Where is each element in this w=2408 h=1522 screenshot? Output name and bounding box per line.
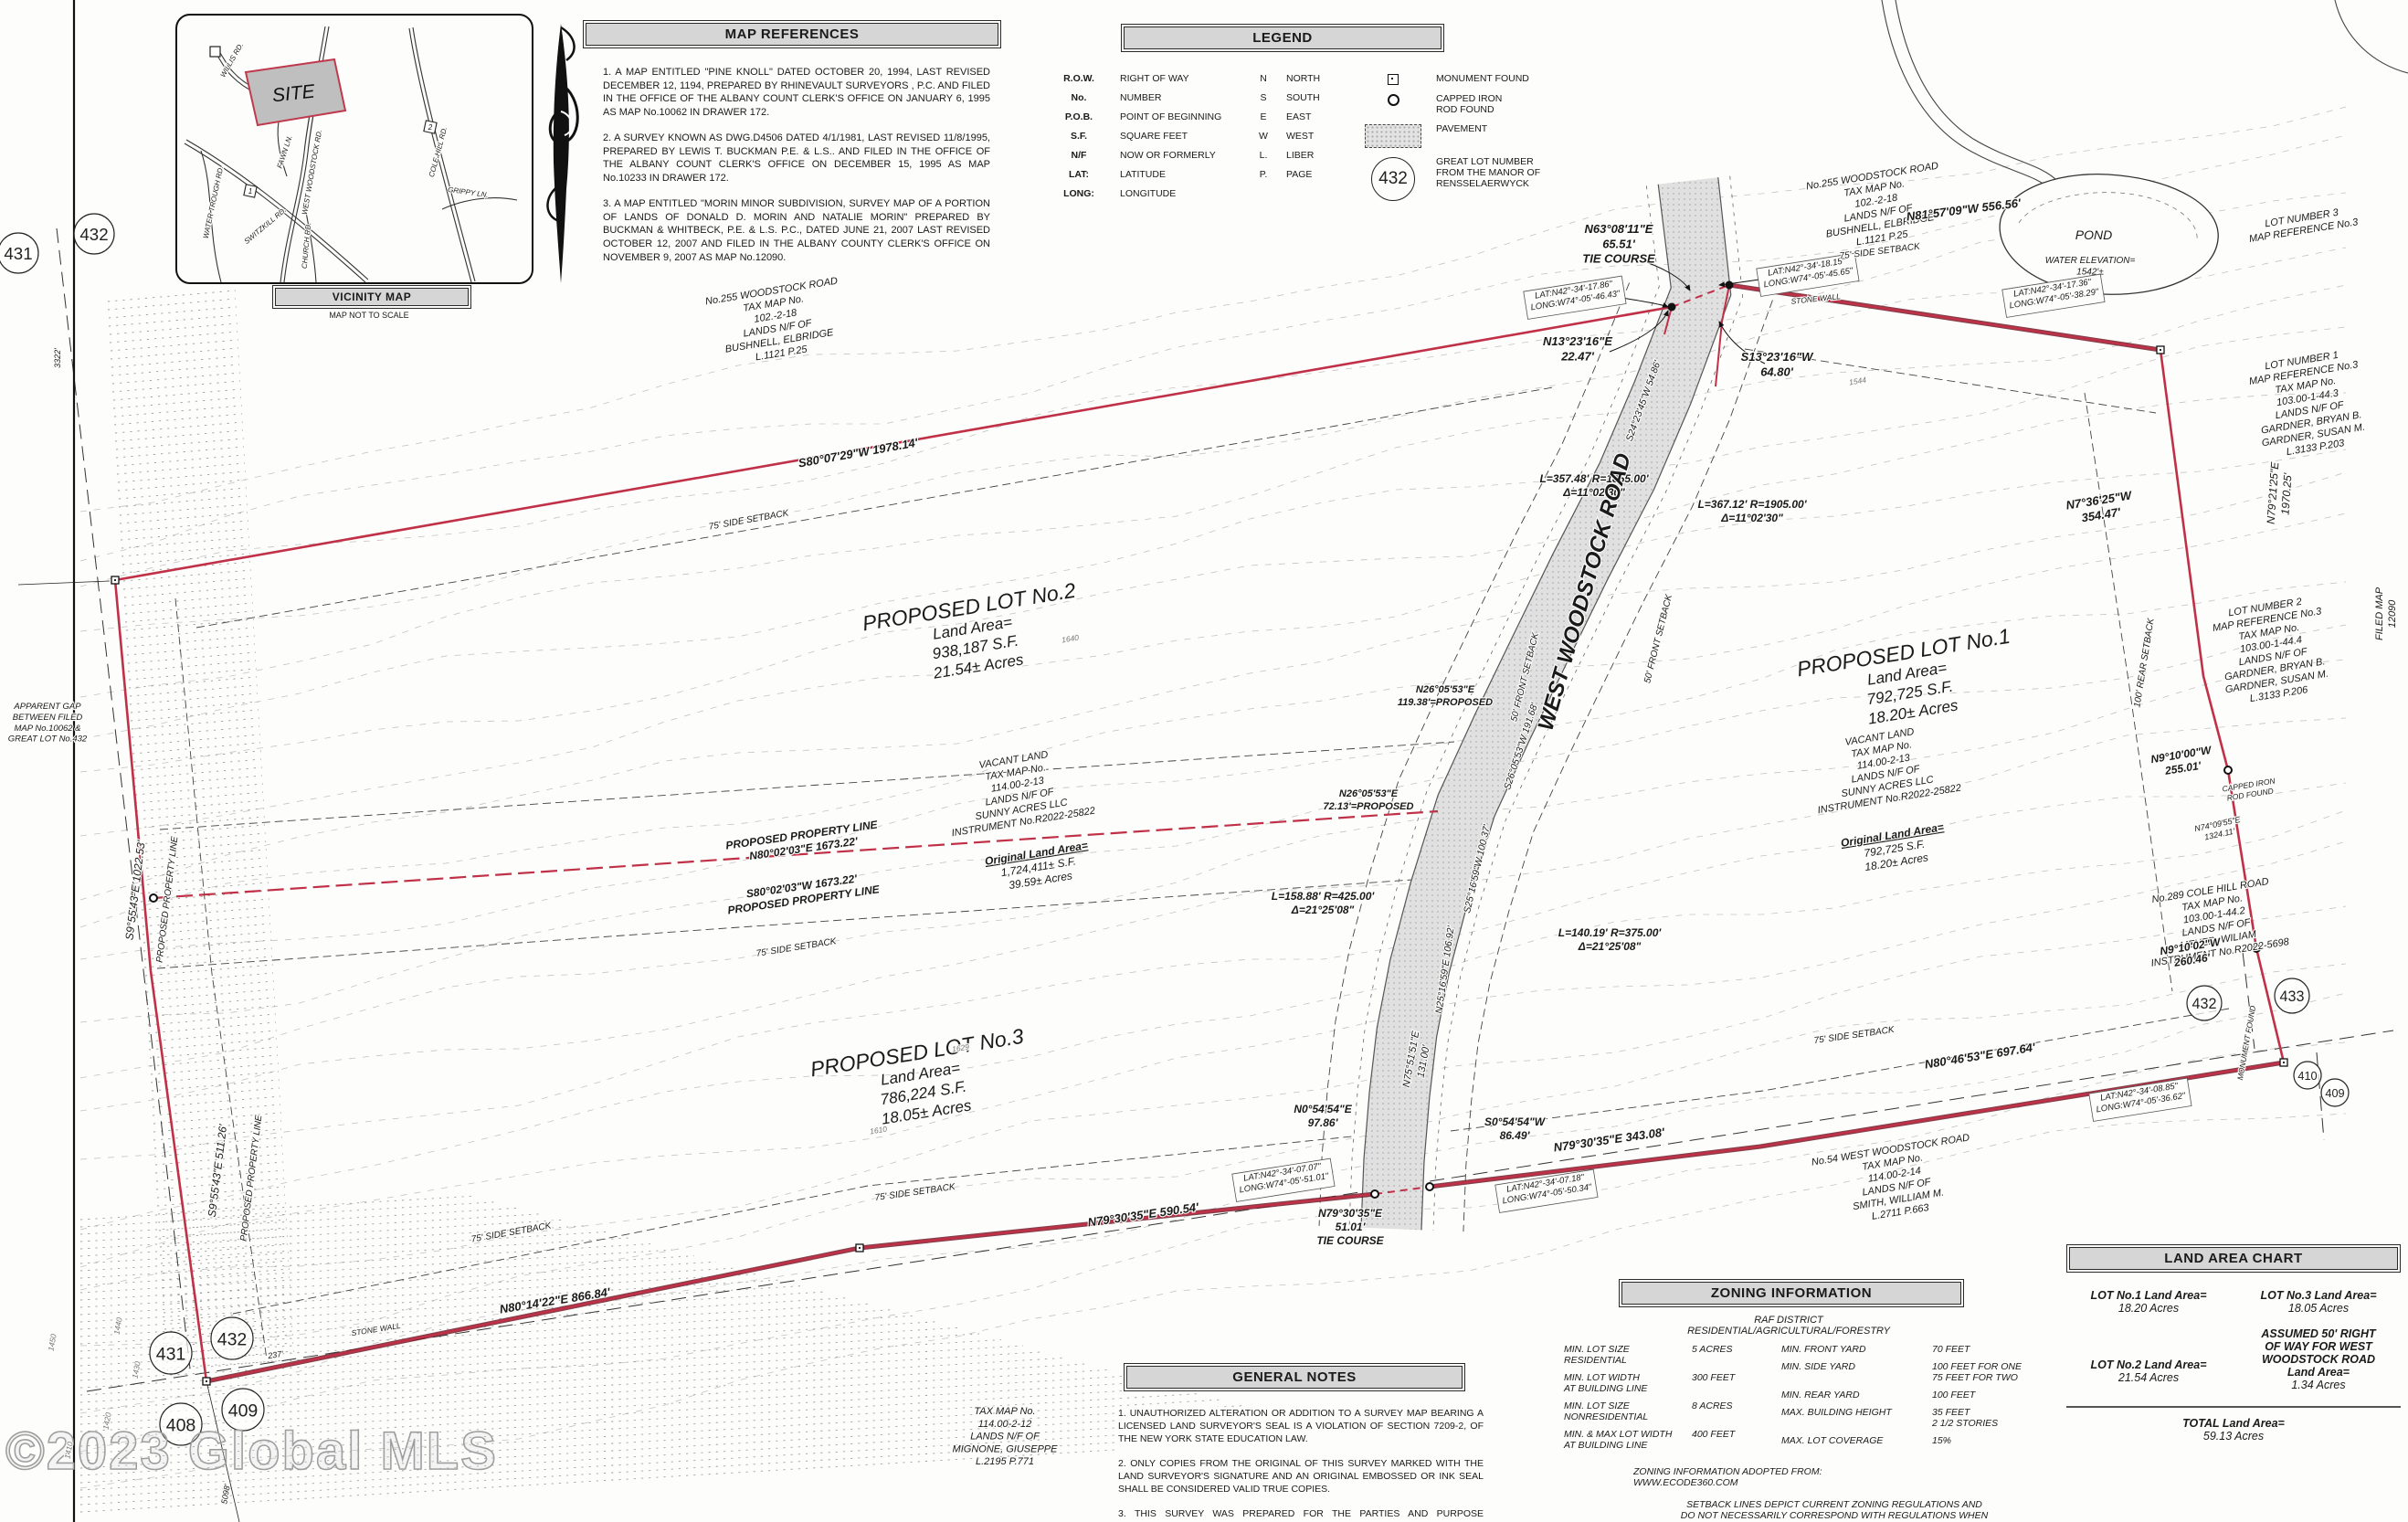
zoning-title-bar: ZONING INFORMATION: [1619, 1279, 1964, 1307]
legend-row: E EAST: [1253, 111, 1363, 122]
map-label-group: LOT NUMBER 1MAP REFERENCE No.3TAX MAP No…: [2246, 347, 2371, 462]
north-arrow-ornament-icon: [530, 20, 594, 285]
map-label-group: N9°10'00"W255.01': [2149, 744, 2215, 779]
legend-meaning: NORTH: [1273, 73, 1320, 84]
zoning-requirement: MIN. LOT WIDTH AT BUILDING LINE 300 FEET: [1564, 1372, 1781, 1394]
contour-line: [80, 513, 2346, 927]
map-label-group: 1430: [130, 1360, 142, 1379]
general-notes-title-bar: GENERAL NOTES: [1124, 1363, 1465, 1391]
map-label-group: 75' SIDE SETBACK: [874, 1182, 957, 1203]
map-label: Original Land Area=1,724,411± S.F.39.59±…: [984, 839, 1093, 894]
map-label-group: L=140.19' R=375.00'Δ=21°25'08": [1558, 926, 1663, 953]
monument-found-icon: [1363, 73, 1423, 85]
zoning-district: RAF DISTRICT RESIDENTIAL/AGRICULTURAL/FO…: [1551, 1315, 2026, 1337]
zoning-requirement-value: 300 FEET: [1692, 1372, 1774, 1394]
monument-found-icon: [206, 1380, 207, 1382]
vicinity-road-end-box: [210, 47, 220, 57]
legend-row: L. LIBER: [1253, 150, 1363, 161]
map-label-group: 75' SIDE SETBACK: [1813, 1025, 1896, 1046]
map-label: 1640: [1061, 633, 1080, 645]
map-label-group: S80°02'03"W 1673.22'PROPOSED PROPERTY LI…: [724, 869, 881, 916]
general-notes-title: GENERAL NOTES: [1126, 1366, 1463, 1389]
legend-meaning: CAPPED IRON ROD FOUND: [1423, 93, 1502, 115]
route-marker-number: 1: [248, 187, 252, 196]
contour-line: [80, 393, 2346, 772]
legend-abbr: LAT:: [1051, 169, 1107, 180]
map-label-group: FILED MAP12090: [2374, 587, 2398, 640]
map-label: N79°21'25"E1970.25': [2265, 460, 2296, 525]
zoning-requirement: MIN. SIDE YARD 100 FEET FOR ONE 75 FEET …: [1781, 1361, 2065, 1383]
map-label: N79°30'35"E 343.08': [1553, 1125, 1666, 1154]
slope-hatch: [108, 291, 294, 1370]
legend-abbr: S.F.: [1051, 131, 1107, 142]
capped-iron-rod-icon: [150, 894, 157, 902]
map-reference-note: 2. A SURVEY KNOWN AS DWG.D4506 DATED 4/1…: [603, 132, 990, 185]
great-lot-circles: 431432432433410409431432408409: [0, 214, 2349, 1445]
map-label: L=140.19' R=375.00'Δ=21°25'08": [1558, 926, 1663, 953]
general-note: 3. THIS SURVEY WAS PREPARED FOR THE PART…: [1118, 1507, 1484, 1522]
map-label: 75' SIDE SETBACK: [874, 1182, 957, 1203]
zoning-requirement-label: MIN. REAR YARD: [1781, 1390, 1932, 1400]
great-lot-number: 432: [2192, 996, 2217, 1012]
map-label-group: N0°54'54"E97.86': [1294, 1103, 1352, 1129]
map-label: FILED MAP12090: [2374, 587, 2398, 640]
land-area-chart-title-bar: LAND AREA CHART: [2066, 1244, 2401, 1273]
route-marker-number: 2: [428, 123, 433, 132]
map-label-group: S13°23'16"W64.80': [1741, 350, 1815, 378]
legend-meaning: LONGITUDE: [1107, 188, 1176, 199]
survey-sheet: 431432432433410409431432408409 ©2023 Glo…: [0, 0, 2408, 1522]
great-lot-line: [57, 228, 190, 1369]
map-label-group: PROPOSED LOT No.1Land Area=792,725 S.F.1…: [1795, 624, 2021, 738]
zoning-requirement-value: 5 ACRES: [1692, 1344, 1774, 1366]
map-label-group: N26°05'53"E119.38'=PROPOSED: [1398, 684, 1493, 708]
stream-line: [1882, 0, 2049, 188]
legend-row: W WEST: [1253, 131, 1363, 142]
legend-abbr: W: [1253, 131, 1273, 142]
zoning-requirement-value: 70 FEET: [1932, 1344, 2060, 1355]
legend-symbol-row: PAVEMENT: [1363, 123, 1582, 148]
legend-meaning: GREAT LOT NUMBER FROM THE MANOR OF RENSS…: [1423, 156, 1540, 189]
map-label-group: S0°54'54"W86.49': [1484, 1115, 1547, 1142]
map-label: 75' SIDE SETBACK: [1839, 241, 1922, 261]
vicinity-map-title-bar: VICINITY MAP: [272, 285, 471, 309]
pavement-icon: [1363, 123, 1423, 148]
great-lot-number: 432: [79, 225, 108, 244]
map-label-group: LAT:N42°-34'-17.86"LONG:W74°-05'-46.43": [1524, 276, 1626, 319]
map-label: POND: [2075, 227, 2112, 242]
map-label-group: VACANT LANDTAX MAP No.114.00-2-13LANDS N…: [941, 744, 1096, 840]
monument-found-icon: [859, 1247, 861, 1249]
map-label-group: LOT NUMBER 2MAP REFERENCE No.3TAX MAP No…: [2210, 594, 2335, 709]
legend-row: R.O.W. RIGHT OF WAY: [1051, 73, 1252, 84]
vicinity-road-label: WATER TROUGH RD.: [202, 165, 226, 239]
map-label: N13°23'16"E22.47': [1543, 334, 1612, 363]
contour-line: [80, 810, 2346, 1230]
map-label: VACANT LANDTAX MAP No.114.00-2-13LANDS N…: [941, 744, 1096, 840]
legend-row: LONG: LONGITUDE: [1051, 188, 1252, 199]
legend-abbr: P.: [1253, 169, 1273, 180]
legend-abbr: R.O.W.: [1051, 73, 1107, 84]
stone-wall: [1430, 1062, 2284, 1187]
legend-meaning: SQUARE FEET: [1107, 131, 1188, 142]
legend-abbr: N/F: [1051, 150, 1107, 161]
zoning-requirement: MIN. LOT SIZE RESIDENTIAL 5 ACRES: [1564, 1344, 1781, 1366]
vicinity-map-drawing: WILLIS RD.WEST WOODSTOCK RD.SWITZKILL RD…: [177, 16, 532, 282]
legend-meaning: NOW OR FORMERLY: [1107, 150, 1216, 161]
map-label-group: PROPOSED PROPERTY LINE: [155, 836, 181, 964]
general-note: 1. UNAUTHORIZED ALTERATION OR ADDITION T…: [1118, 1407, 1484, 1445]
legend-symbol-row: MONUMENT FOUND: [1363, 73, 1582, 85]
map-references-title: MAP REFERENCES: [586, 23, 998, 46]
monument-found-icon: [114, 579, 116, 581]
legend-abbr: E: [1253, 111, 1273, 122]
map-label-group: N63°08'11"E65.51'TIE COURSE: [1582, 222, 1655, 266]
map-label-group: PROPOSED LOT No.2Land Area=938,187 S.F.2…: [861, 578, 1086, 692]
map-label-group: S80°07'29"W 1978.14': [797, 436, 920, 470]
map-label-group: 5098': [219, 1484, 232, 1505]
zoning-requirements-left: MIN. LOT SIZE RESIDENTIAL 5 ACRES MIN. L…: [1564, 1344, 1781, 1457]
map-label: N80°46'53"E 697.64': [1924, 1040, 2037, 1071]
land-area-entry: LOT No.2 Land Area= 21.54 Acres: [2066, 1358, 2231, 1391]
map-label-group: 3322': [53, 348, 62, 368]
map-label: S80°07'29"W 1978.14': [797, 436, 920, 470]
map-label: PROPOSED LOT No.3Land Area=786,224 S.F.1…: [808, 1024, 1034, 1138]
watermark: ©2023 Global MLS: [5, 1422, 498, 1481]
vicinity-map-title: VICINITY MAP: [275, 288, 469, 306]
map-label: 1544: [1848, 375, 1867, 387]
zoning-requirement-value: 8 ACRES: [1692, 1400, 1774, 1422]
map-label-group: 1610: [869, 1125, 888, 1136]
land-area-chart-title: LAND AREA CHART: [2069, 1247, 2398, 1270]
capped-iron-rod-icon: [1363, 93, 1423, 106]
map-label-group: 75' SIDE SETBACK: [1839, 241, 1922, 261]
legend-meaning: LIBER: [1273, 150, 1314, 161]
map-label: N26°05'53"E119.38'=PROPOSED: [1398, 684, 1493, 708]
vicinity-road-label: CHURCH RD.: [301, 222, 312, 269]
map-references-title-bar: MAP REFERENCES: [583, 20, 1001, 48]
map-label: LOT NUMBER 2MAP REFERENCE No.3TAX MAP No…: [2210, 594, 2335, 709]
map-label: 237': [266, 1349, 283, 1361]
legend-row: P.O.B. POINT OF BEGINNING: [1051, 111, 1252, 122]
great-lot-number: 432: [217, 1329, 248, 1349]
map-label-group: 75' SIDE SETBACK: [708, 508, 790, 532]
land-area-entry: ASSUMED 50' RIGHT OF WAY FOR WEST WOODST…: [2236, 1327, 2401, 1391]
map-label: N7°36'25"W354.47': [2065, 488, 2136, 526]
legend-row: N/F NOW OR FORMERLY: [1051, 150, 1252, 161]
legend-row: P. PAGE: [1253, 169, 1363, 180]
map-label: N9°10'00"W255.01': [2149, 744, 2215, 779]
map-label: PROPOSED PROPERTY LINE: [155, 836, 181, 964]
map-label: TAX MAP No.114.00-2-12LANDS N/F OFMIGNON…: [953, 1406, 1059, 1467]
legend-abbr: N: [1253, 73, 1273, 84]
vicinity-map-note: MAP NOT TO SCALE: [272, 311, 466, 320]
map-label: 50' FRONT SETBACK: [1642, 592, 1674, 684]
map-label: 3322': [53, 348, 62, 368]
map-label: 75' SIDE SETBACK: [755, 936, 839, 959]
map-label-group: No.255 WOODSTOCK ROADTAX MAP No.102.-2-1…: [704, 276, 848, 370]
point-marker: [1726, 281, 1734, 290]
map-label-group: N80°46'53"E 697.64': [1924, 1040, 2037, 1071]
map-label: S80°02'03"W 1673.22'PROPOSED PROPERTY LI…: [724, 869, 881, 916]
legend-abbreviations: R.O.W. RIGHT OF WAY No. NUMBER P.O.B. PO…: [1051, 73, 1252, 207]
land-area-entry: LOT No.1 Land Area= 18.20 Acres: [2066, 1289, 2231, 1315]
legend-symbols: MONUMENT FOUND CAPPED IRON ROD FOUND PAV…: [1363, 73, 1582, 209]
legend-abbr: No.: [1051, 92, 1107, 103]
map-label-group: Original Land Area=792,725 S.F.18.20± Ac…: [1840, 820, 1949, 876]
land-area-entry: LOT No.3 Land Area= 18.05 Acres: [2236, 1289, 2401, 1315]
map-label-group: LOT NUMBER 3MAP REFERENCE No.3: [2246, 205, 2360, 245]
legend-symbol-row: 432 GREAT LOT NUMBER FROM THE MANOR OF R…: [1363, 156, 1582, 201]
legend-meaning: PAVEMENT: [1423, 123, 1487, 134]
map-label: 100' REAR SETBACK: [2132, 617, 2156, 708]
map-label: S9°55'43"E 511.26': [206, 1123, 229, 1218]
zoning-requirement: MAX. LOT COVERAGE 15%: [1781, 1435, 2065, 1446]
map-label: LOT NUMBER 1MAP REFERENCE No.3TAX MAP No…: [2246, 347, 2371, 462]
map-label-group: POND: [2075, 227, 2112, 242]
zoning-requirement-label: MIN. & MAX LOT WIDTH AT BUILDING LINE: [1564, 1429, 1692, 1451]
great-lot-number: 410: [2297, 1069, 2317, 1083]
map-label-group: 50' FRONT SETBACK: [1642, 592, 1674, 684]
map-label: 1450: [46, 1333, 58, 1352]
vicinity-road-label: SWITZKILL RD.: [243, 206, 289, 246]
map-reference-note: 3. A MAP ENTITLED "MORIN MINOR SUBDIVISI…: [603, 197, 990, 265]
monument-found-icon: [2283, 1062, 2285, 1063]
stone-wall: [206, 1194, 1375, 1381]
map-label: L=367.12' R=1905.00'Δ=11°02'30": [1697, 498, 1807, 524]
zoning-requirement-label: MIN. LOT SIZE NONRESIDENTIAL: [1564, 1400, 1692, 1422]
map-label-group: S9°55'43"E 511.26': [206, 1123, 229, 1218]
map-label: S0°54'54"W86.49': [1484, 1115, 1547, 1142]
map-label: Original Land Area=792,725 S.F.18.20± Ac…: [1840, 820, 1949, 876]
map-label-group: 100' REAR SETBACK: [2132, 617, 2156, 708]
map-label: No.54 WEST WOODSTOCK ROADTAX MAP No.114.…: [1811, 1132, 1980, 1230]
map-label: 1440: [111, 1316, 123, 1336]
map-label-group: No.54 WEST WOODSTOCK ROADTAX MAP No.114.…: [1811, 1132, 1980, 1230]
zoning-requirement: MIN. REAR YARD 100 FEET: [1781, 1390, 2065, 1400]
map-label-group: L=158.88' R=425.00'Δ=21°25'08": [1272, 890, 1376, 916]
map-label: 75' SIDE SETBACK: [1813, 1025, 1896, 1046]
legend-meaning: SOUTH: [1273, 92, 1320, 103]
legend-abbr: P.O.B.: [1051, 111, 1107, 122]
legend-symbol-row: CAPPED IRON ROD FOUND: [1363, 93, 1582, 115]
zoning-requirement: MIN. LOT SIZE NONRESIDENTIAL 8 ACRES: [1564, 1400, 1781, 1422]
legend-meaning: MONUMENT FOUND: [1423, 73, 1529, 84]
map-label-group: Original Land Area=1,724,411± S.F.39.59±…: [984, 839, 1093, 894]
great-lot-number: 431: [4, 244, 32, 263]
map-label-group: LAT:N42°-34'-07.07"LONG:W74°-05'-51.01": [1232, 1158, 1335, 1201]
land-area-total: TOTAL Land Area= 59.13 Acres: [2066, 1406, 2401, 1443]
vicinity-road-label: WEST WOODSTOCK RD.: [301, 129, 323, 216]
map-reference-note: 1. A MAP ENTITLED "PINE KNOLL" DATED OCT…: [603, 66, 990, 120]
land-area-chart-panel: LAND AREA CHART LOT No.1 Land Area= 18.2…: [2066, 1244, 2401, 1443]
legend-meaning: RIGHT OF WAY: [1107, 73, 1189, 84]
map-label: N79°30'35"E 590.54': [1087, 1200, 1200, 1229]
legend-meaning: NUMBER: [1107, 92, 1162, 103]
legend-title-bar: LEGEND: [1121, 24, 1444, 52]
general-notes-text: 1. UNAUTHORIZED ALTERATION OR ADDITION T…: [1118, 1407, 1484, 1522]
vicinity-road-label: GRIPPY LN.: [448, 185, 490, 199]
map-label-group: 75' SIDE SETBACK: [755, 936, 839, 959]
map-label-group: 1544: [1848, 375, 1867, 387]
contour-line: [80, 783, 2346, 1159]
capped-iron-rod-icon: [1371, 1190, 1378, 1198]
map-label-group: N79°21'25"E1970.25': [2265, 460, 2296, 525]
zoning-requirement-value: 100 FEET FOR ONE 75 FEET FOR TWO: [1932, 1361, 2060, 1383]
zoning-requirement-value: 100 FEET: [1932, 1390, 2060, 1400]
map-label-group: TAX MAP No.114.00-2-12LANDS N/F OFMIGNON…: [953, 1406, 1059, 1467]
legend-row: S SOUTH: [1253, 92, 1363, 103]
map-label: PROPOSED LOT No.2Land Area=938,187 S.F.2…: [861, 578, 1086, 692]
capped-iron-rod-icon: [1426, 1183, 1433, 1190]
great-lot-circle-icon: 432: [1363, 156, 1423, 201]
map-label-group: 1450: [46, 1333, 58, 1352]
monument-found-icon: [2160, 349, 2161, 351]
map-label-group: 1640: [1061, 633, 1080, 645]
map-label-group: APPARENT GAPBETWEEN FILEDMAP No.10062 &G…: [8, 702, 88, 745]
legend-row: N NORTH: [1253, 73, 1363, 84]
legend-title: LEGEND: [1124, 26, 1442, 49]
stream-line: [2335, 0, 2408, 73]
legend-abbr: L.: [1253, 150, 1273, 161]
great-lot-number: 409: [228, 1400, 259, 1421]
vicinity-road-label: WILLIS RD.: [218, 41, 245, 79]
map-label: LOT NUMBER 3MAP REFERENCE No.3: [2246, 205, 2360, 245]
legend-abbr: LONG:: [1051, 188, 1107, 199]
zoning-title: ZONING INFORMATION: [1621, 1282, 1961, 1305]
map-label: No.255 WOODSTOCK ROADTAX MAP No.102.-2-1…: [704, 276, 848, 370]
map-label-group: N13°23'16"E22.47': [1543, 334, 1612, 363]
great-lot-number: 433: [2280, 988, 2305, 1005]
zoning-requirement-label: MIN. SIDE YARD: [1781, 1361, 1932, 1383]
zoning-requirement: MIN. FRONT YARD 70 FEET: [1781, 1344, 2065, 1355]
map-label: N0°54'54"E97.86': [1294, 1103, 1352, 1129]
legend-row: No. NUMBER: [1051, 92, 1252, 103]
contour-line: [80, 327, 2346, 739]
map-label: 75' SIDE SETBACK: [708, 508, 790, 532]
map-label: 5098': [219, 1484, 232, 1505]
legend-row: LAT: LATITUDE: [1051, 169, 1252, 180]
map-label-group: N7°36'25"W354.47': [2065, 488, 2136, 526]
map-label: APPARENT GAPBETWEEN FILEDMAP No.10062 &G…: [8, 702, 88, 745]
setback-line: [160, 742, 1454, 830]
zoning-requirement-label: MAX. LOT COVERAGE: [1781, 1435, 1932, 1446]
legend-meaning: LATITUDE: [1107, 169, 1166, 180]
map-references-notes: 1. A MAP ENTITLED "PINE KNOLL" DATED OCT…: [603, 66, 990, 277]
zoning-requirement: MIN. & MAX LOT WIDTH AT BUILDING LINE 40…: [1564, 1429, 1781, 1451]
point-marker: [1668, 303, 1676, 312]
legend-meaning: EAST: [1273, 111, 1311, 122]
map-label-group: N79°30'35"E 343.08': [1553, 1125, 1666, 1154]
map-label-group: PROPOSED LOT No.3Land Area=786,224 S.F.1…: [808, 1024, 1034, 1138]
legend-directions: N NORTH S SOUTH E EAST W WEST L. LIBER P…: [1253, 73, 1363, 188]
setback-line: [233, 1136, 1352, 1314]
vicinity-map: WILLIS RD.WEST WOODSTOCK RD.SWITZKILL RD…: [175, 14, 533, 284]
zoning-requirement-label: MAX. BUILDING HEIGHT: [1781, 1407, 1932, 1429]
zoning-requirement-label: MIN. LOT WIDTH AT BUILDING LINE: [1564, 1372, 1692, 1394]
zoning-information-panel: ZONING INFORMATION RAF DISTRICT RESIDENT…: [1551, 1279, 2143, 1522]
map-label: L=158.88' R=425.00'Δ=21°25'08": [1272, 890, 1376, 916]
legend-meaning: PAGE: [1273, 169, 1312, 180]
map-label-group: L=367.12' R=1905.00'Δ=11°02'30": [1697, 498, 1807, 524]
map-label: PROPOSED PROPERTY LINE: [239, 1115, 265, 1242]
zoning-requirement: MAX. BUILDING HEIGHT 35 FEET 2 1/2 STORI…: [1781, 1407, 2065, 1429]
map-label: 1430: [130, 1360, 142, 1379]
general-note: 2. ONLY COPIES FROM THE ORIGINAL OF THIS…: [1118, 1457, 1484, 1496]
zoning-requirement-value: 15%: [1932, 1435, 2060, 1446]
zoning-requirement-label: MIN. LOT SIZE RESIDENTIAL: [1564, 1344, 1692, 1366]
zoning-source: ZONING INFORMATION ADOPTED FROM: WWW.ECO…: [1633, 1466, 2143, 1488]
zoning-requirements-right: MIN. FRONT YARD 70 FEET MIN. SIDE YARD 1…: [1781, 1344, 2065, 1457]
map-label: 75' SIDE SETBACK: [470, 1221, 553, 1244]
map-label-group: 237': [266, 1349, 283, 1361]
zoning-requirement-value: 400 FEET: [1692, 1429, 1774, 1451]
water-features: [1882, 0, 2408, 294]
zoning-disclaimer: SETBACK LINES DEPICT CURRENT ZONING REGU…: [1560, 1499, 2108, 1522]
legend-abbr: S: [1253, 92, 1273, 103]
legend-meaning: POINT OF BEGINNING: [1107, 111, 1221, 122]
map-label: N63°08'11"E65.51'TIE COURSE: [1582, 222, 1655, 266]
tie-line: [18, 581, 110, 585]
legend-row: S.F. SQUARE FEET: [1051, 131, 1252, 142]
map-label-group: PROPOSED PROPERTY LINE: [239, 1115, 265, 1242]
map-label-group: 75' SIDE SETBACK: [470, 1221, 553, 1244]
map-label-group: 1440: [111, 1316, 123, 1336]
survey-markers: [111, 281, 2287, 1386]
great-lot-number: 431: [156, 1344, 186, 1364]
map-label: PROPOSED LOT No.1Land Area=792,725 S.F.1…: [1795, 624, 2021, 738]
capped-iron-rod-icon: [2224, 766, 2232, 774]
map-label: S13°23'16"W64.80': [1741, 350, 1815, 378]
setback-line: [196, 387, 1553, 628]
legend-meaning: WEST: [1273, 131, 1314, 142]
contour-line: [80, 906, 2346, 1290]
map-label: 1610: [869, 1125, 888, 1136]
map-label: N26°05'53"E72.13'=PROPOSED: [1324, 788, 1414, 812]
map-label-group: N26°05'53"E72.13'=PROPOSED: [1324, 788, 1414, 812]
zoning-requirement-value: 35 FEET 2 1/2 STORIES: [1932, 1407, 2060, 1429]
zoning-requirement-label: MIN. FRONT YARD: [1781, 1344, 1932, 1355]
great-lot-number: 409: [2325, 1086, 2344, 1100]
map-label-group: N79°30'35"E 590.54': [1087, 1200, 1200, 1229]
